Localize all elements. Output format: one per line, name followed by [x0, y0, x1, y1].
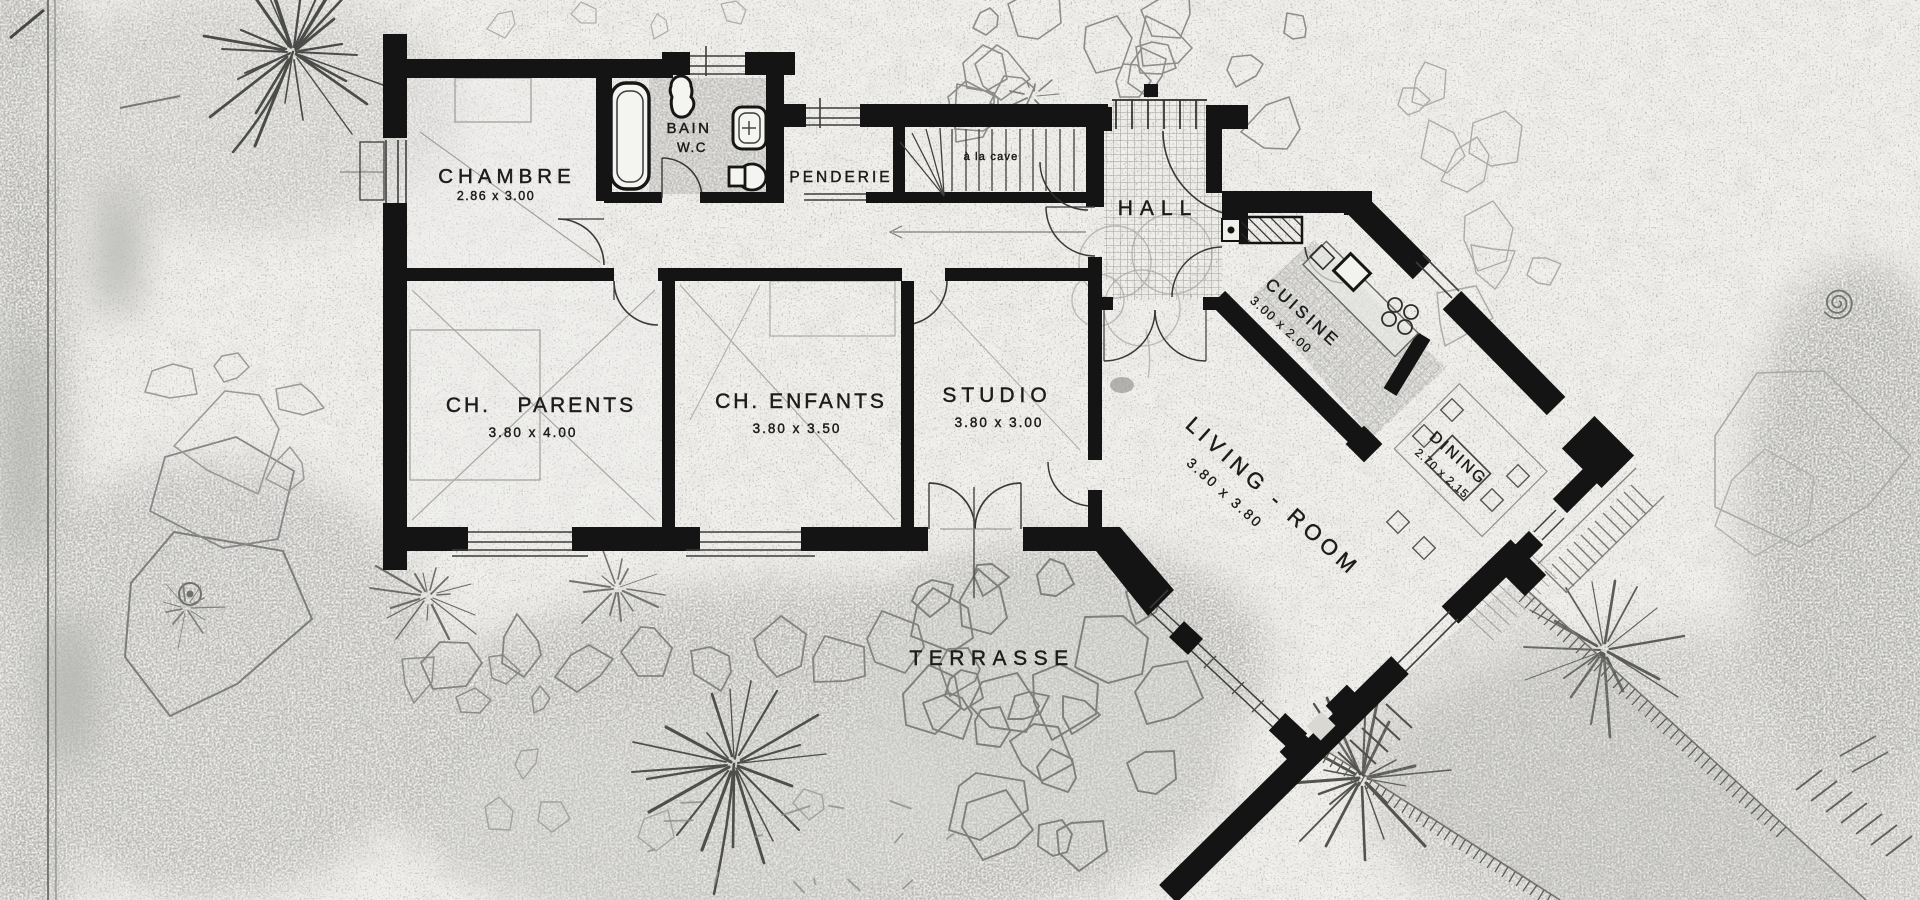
svg-text:STUDIO: STUDIO [942, 384, 1051, 407]
svg-text:BAIN: BAIN [666, 120, 711, 137]
svg-text:CH. PARENTS: CH. PARENTS [446, 394, 636, 417]
svg-text:3.80 x 3.50: 3.80 x 3.50 [753, 421, 842, 436]
svg-text:TERRASSE: TERRASSE [909, 647, 1074, 670]
svg-text:2.86 x 3.00: 2.86 x 3.00 [457, 189, 535, 203]
svg-text:W.C: W.C [677, 140, 707, 155]
svg-text:3.80 x 4.00: 3.80 x 4.00 [489, 425, 578, 440]
svg-text:à la cave: à la cave [964, 151, 1019, 163]
svg-text:3.80 x 3.00: 3.80 x 3.00 [955, 415, 1044, 430]
svg-text:CH. ENFANTS: CH. ENFANTS [715, 390, 887, 413]
svg-text:CHAMBRE: CHAMBRE [438, 165, 576, 188]
svg-text:HALL: HALL [1118, 197, 1199, 220]
svg-text:PENDERIE: PENDERIE [789, 169, 892, 186]
